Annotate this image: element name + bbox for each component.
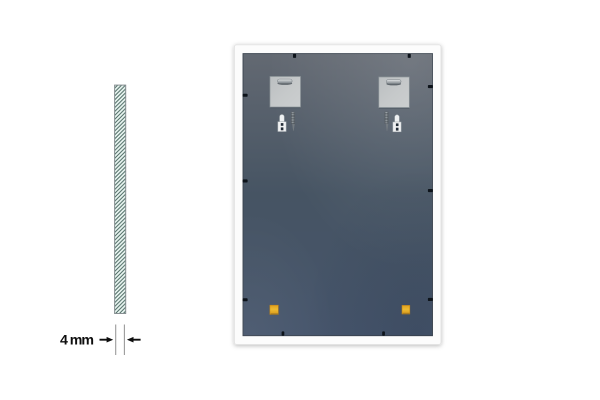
svg-text:4 mm: 4 mm [60, 332, 94, 348]
